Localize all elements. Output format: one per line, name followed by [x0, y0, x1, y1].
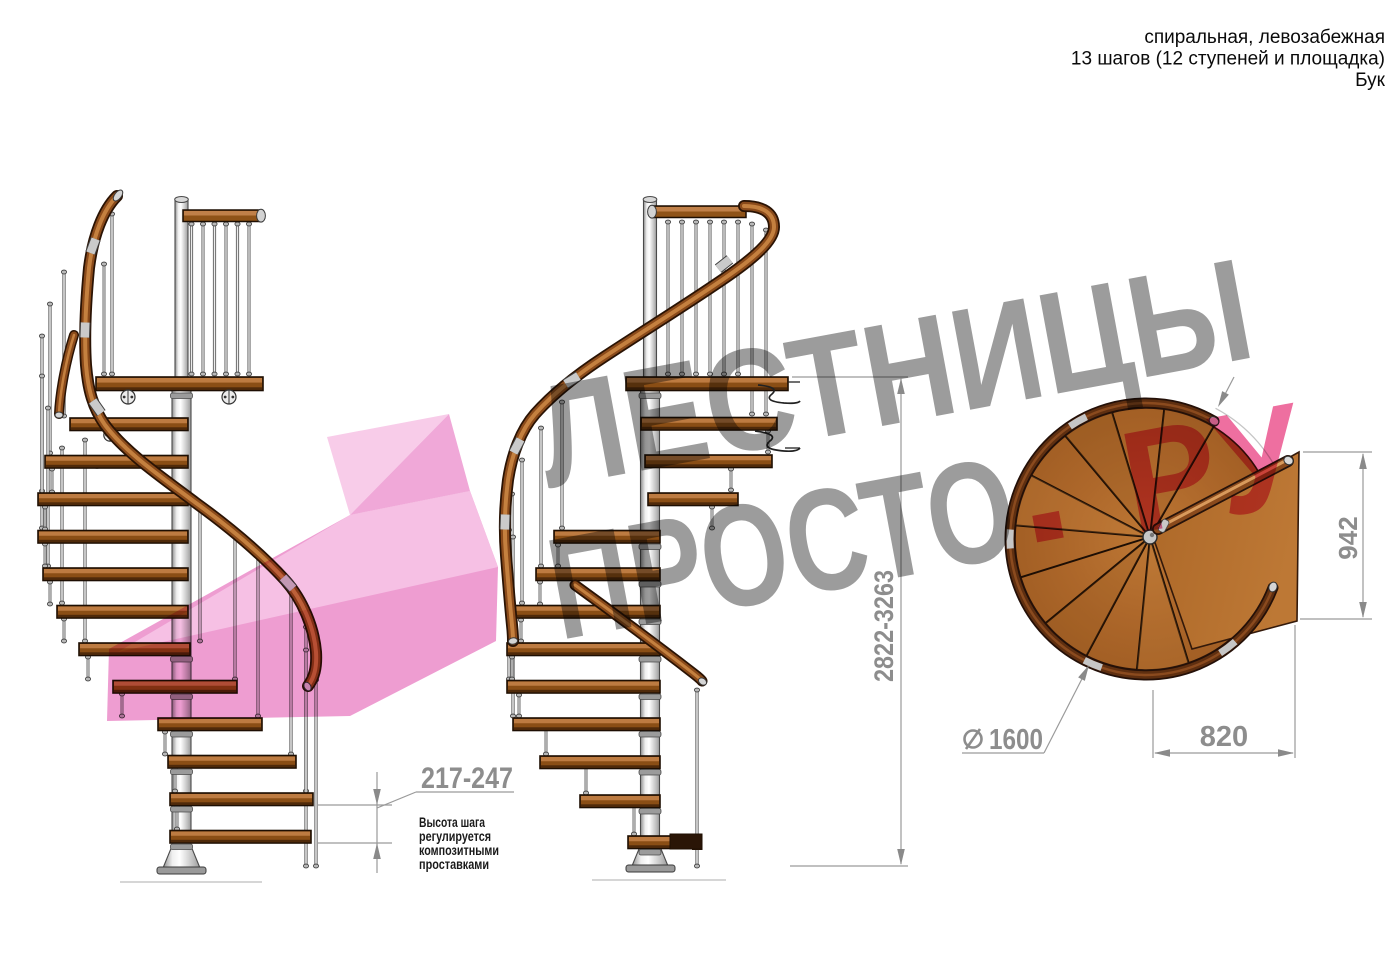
svg-text:942: 942 [1333, 516, 1363, 559]
svg-text:1600: 1600 [989, 724, 1043, 756]
svg-text:217-247: 217-247 [421, 762, 513, 795]
svg-text:проставками: проставками [419, 856, 489, 872]
svg-text:13 шагов (12 ступеней и площад: 13 шагов (12 ступеней и площадка) [1071, 49, 1385, 70]
svg-text:спиральная, левозабежная: спиральная, левозабежная [1144, 27, 1385, 48]
svg-text:Бук: Бук [1355, 70, 1386, 91]
svg-text:820: 820 [1200, 721, 1248, 753]
svg-text:РУ: РУ [1109, 372, 1317, 564]
